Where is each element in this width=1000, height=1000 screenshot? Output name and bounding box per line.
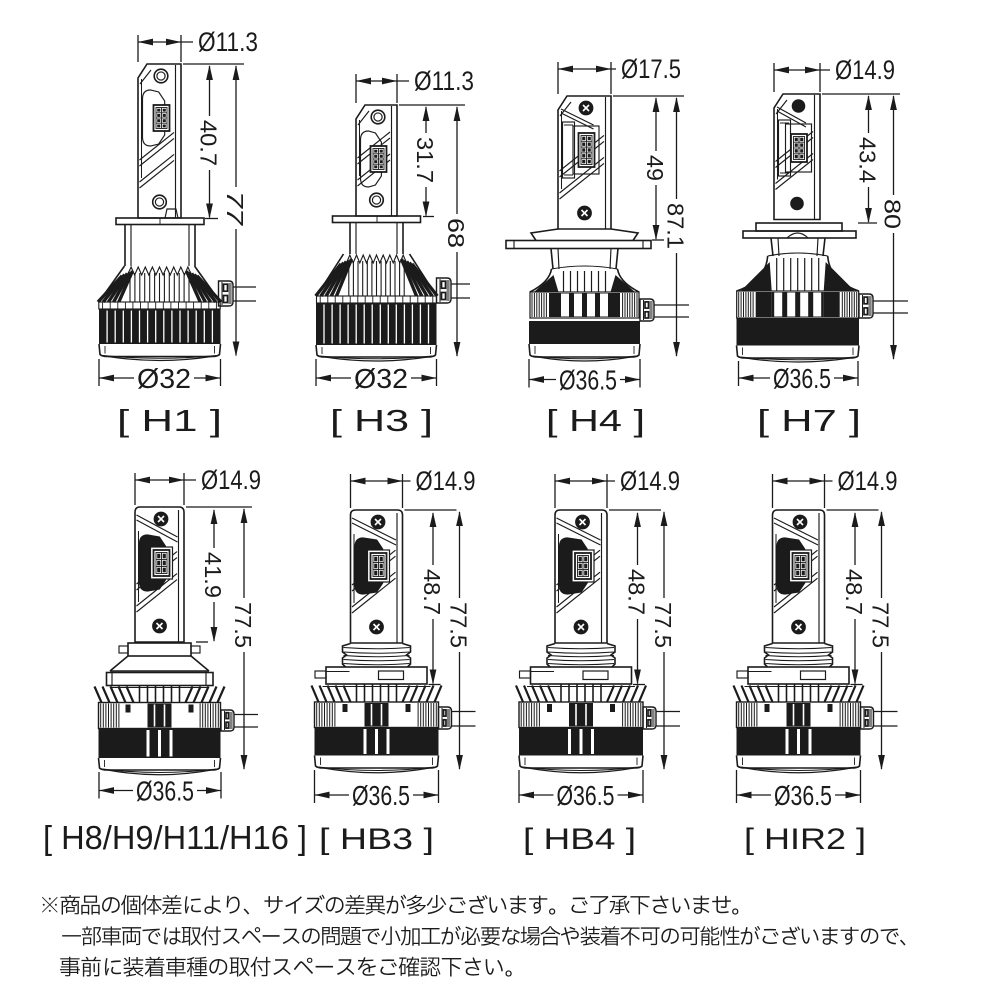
svg-text:Ø14.9: Ø14.9 bbox=[416, 466, 476, 496]
svg-text:[ H8/H9/H11/H16 ]: [ H8/H9/H11/H16 ] bbox=[43, 819, 307, 856]
svg-text:[ HB4 ]: [ HB4 ] bbox=[523, 823, 636, 856]
svg-text:Ø36.5: Ø36.5 bbox=[773, 363, 831, 394]
svg-text:77.5: 77.5 bbox=[446, 602, 472, 648]
svg-text:[ H1 ]: [ H1 ] bbox=[117, 403, 222, 438]
svg-text:Ø11.3: Ø11.3 bbox=[414, 66, 474, 96]
svg-text:80: 80 bbox=[880, 199, 906, 229]
svg-text:48.7: 48.7 bbox=[841, 569, 867, 615]
svg-text:77: 77 bbox=[222, 191, 248, 227]
svg-text:Ø14.9: Ø14.9 bbox=[835, 55, 895, 85]
svg-text:[ HIR2 ]: [ HIR2 ] bbox=[744, 823, 866, 856]
svg-text:48.7: 48.7 bbox=[624, 569, 650, 615]
svg-text:[ H4 ]: [ H4 ] bbox=[546, 403, 645, 438]
svg-text:Ø36.5: Ø36.5 bbox=[559, 365, 617, 396]
svg-text:77.5: 77.5 bbox=[868, 602, 894, 648]
svg-text:Ø36.5: Ø36.5 bbox=[136, 776, 194, 807]
svg-text:Ø14.9: Ø14.9 bbox=[201, 465, 261, 495]
svg-text:87.1: 87.1 bbox=[663, 203, 689, 249]
svg-text:Ø36.5: Ø36.5 bbox=[557, 780, 615, 811]
svg-text:48.7: 48.7 bbox=[419, 569, 445, 615]
svg-text:[ HB3 ]: [ HB3 ] bbox=[319, 823, 434, 856]
svg-text:77.5: 77.5 bbox=[230, 602, 256, 648]
svg-text:43.4: 43.4 bbox=[855, 137, 881, 183]
svg-text:Ø32: Ø32 bbox=[354, 363, 408, 394]
svg-text:Ø17.5: Ø17.5 bbox=[621, 54, 681, 84]
svg-text:Ø14.9: Ø14.9 bbox=[838, 466, 898, 496]
svg-text:Ø11.3: Ø11.3 bbox=[198, 27, 258, 57]
svg-text:Ø14.9: Ø14.9 bbox=[620, 466, 680, 496]
svg-text:49: 49 bbox=[642, 155, 668, 181]
svg-text:77.5: 77.5 bbox=[650, 602, 676, 648]
svg-text:41.9: 41.9 bbox=[200, 552, 226, 598]
svg-text:[ H7 ]: [ H7 ] bbox=[757, 403, 861, 438]
svg-text:40.7: 40.7 bbox=[196, 120, 222, 166]
svg-text:Ø32: Ø32 bbox=[137, 363, 191, 394]
svg-text:[ H3 ]: [ H3 ] bbox=[330, 403, 433, 438]
svg-text:Ø36.5: Ø36.5 bbox=[774, 780, 832, 811]
svg-text:68: 68 bbox=[443, 218, 469, 248]
svg-text:31.7: 31.7 bbox=[412, 137, 438, 183]
svg-text:Ø36.5: Ø36.5 bbox=[352, 780, 410, 811]
